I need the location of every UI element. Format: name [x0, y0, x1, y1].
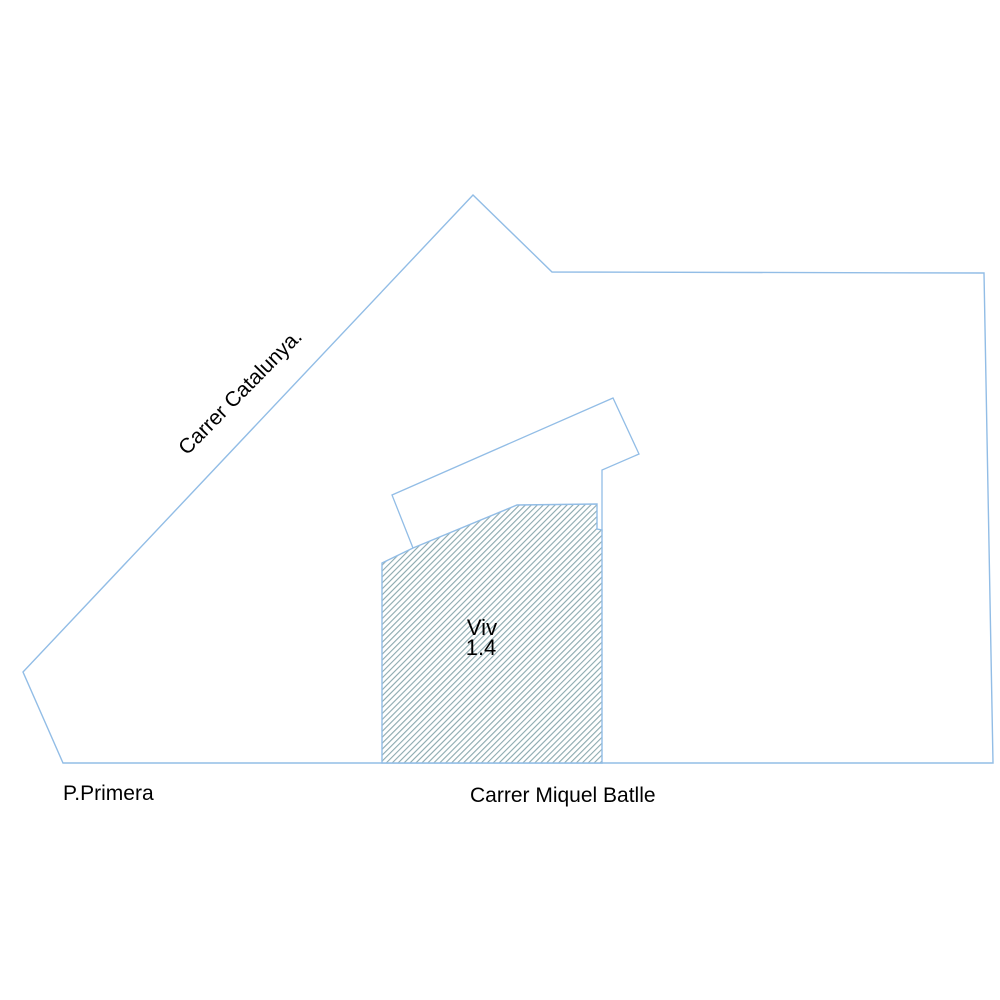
cadastral-plan-page: Carrer Catalunya. P.Primera Carrer Mique…: [0, 0, 1000, 1000]
cadastral-plan-drawing: Carrer Catalunya. P.Primera Carrer Mique…: [0, 0, 1000, 1000]
street-label-carrer-miquel-batlle: Carrer Miquel Batlle: [470, 784, 656, 807]
dwelling-number-label: 1.4: [466, 635, 497, 660]
street-label-p-primera: P.Primera: [63, 782, 154, 805]
